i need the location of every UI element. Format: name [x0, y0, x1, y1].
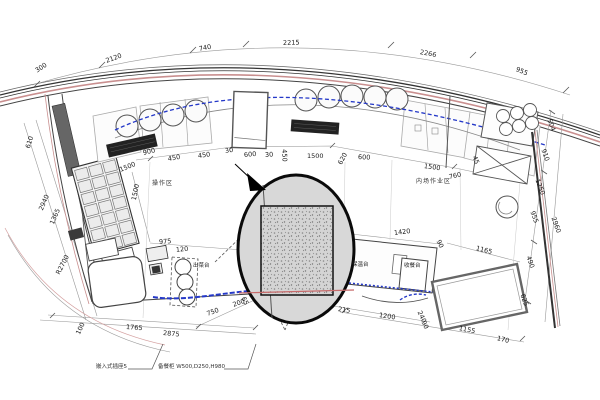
- plan-drawing: [0, 0, 600, 400]
- label-warming-counter: 保温台: [352, 263, 369, 269]
- dim-label: 450: [281, 149, 288, 162]
- dim-label: 1765: [126, 324, 143, 332]
- dim-label: 215: [337, 306, 350, 314]
- dim-label: 1500: [307, 153, 324, 160]
- dim-label: 450: [198, 151, 211, 159]
- dim-label: 1500: [424, 163, 441, 172]
- dim-label: 30: [265, 151, 274, 158]
- floor-plan-canvas: 300 2120 740 2215 2266 955 610 2940 1365…: [0, 0, 600, 400]
- dim-label: 30: [225, 147, 234, 155]
- dim-label: 600: [358, 154, 371, 161]
- dim-label: 600: [244, 151, 257, 159]
- small-dark-block: [68, 227, 84, 240]
- zone-label-operation-area: 操作区: [152, 181, 173, 187]
- sink-circle: [496, 196, 518, 218]
- label-serving-counter: 出菜台: [193, 264, 210, 270]
- detail-callout-circle: [238, 175, 354, 323]
- hatched-bar-center: [291, 119, 340, 134]
- note-cabinet-spec: 备餐柜 W500,D250,H980: [158, 365, 225, 371]
- zone-label-back-of-house: 内场作业区: [416, 179, 451, 185]
- dim-label: 450: [167, 154, 180, 163]
- dim-label: 120: [176, 246, 189, 254]
- bottom-right-room: [432, 264, 527, 330]
- collection-counter: [347, 239, 437, 303]
- blue-pipe-right: [400, 294, 426, 300]
- wall-column: [52, 103, 81, 176]
- rounded-island: [87, 255, 147, 308]
- dim-label: 975: [159, 238, 172, 245]
- note-socket: 嵌入式插座5: [96, 365, 127, 371]
- dim-label: 1420: [394, 228, 411, 236]
- dim-label: 2215: [283, 39, 300, 46]
- white-cabinet: [232, 91, 268, 148]
- dim-label: 2875: [163, 330, 180, 338]
- label-collection-counter: 收餐台: [404, 264, 421, 270]
- small-equipment-blocks: [146, 245, 168, 275]
- detail-arrow-icon: [235, 164, 266, 191]
